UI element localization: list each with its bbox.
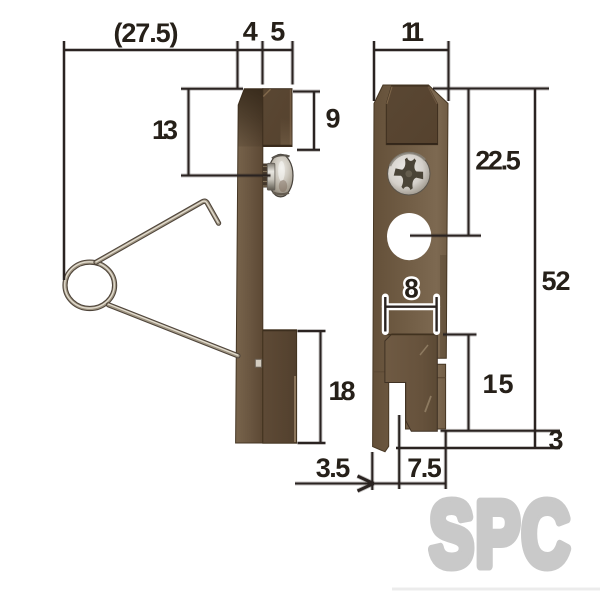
svg-text:3.5: 3.5 [316,453,351,483]
svg-text:5: 5 [270,17,285,47]
svg-text:8: 8 [404,273,419,303]
svg-text:3: 3 [548,425,563,455]
svg-text:18: 18 [329,376,356,406]
svg-text:4: 4 [243,17,258,47]
svg-text:(27.5): (27.5) [114,18,179,48]
svg-text:SPC: SPC [429,483,571,586]
svg-text:9: 9 [325,104,340,134]
svg-text:7.5: 7.5 [407,453,442,483]
svg-text:15: 15 [483,369,514,399]
svg-text:13: 13 [152,115,178,145]
svg-text:52: 52 [542,266,571,296]
svg-text:11: 11 [401,17,424,47]
svg-text:22.5: 22.5 [475,146,521,176]
